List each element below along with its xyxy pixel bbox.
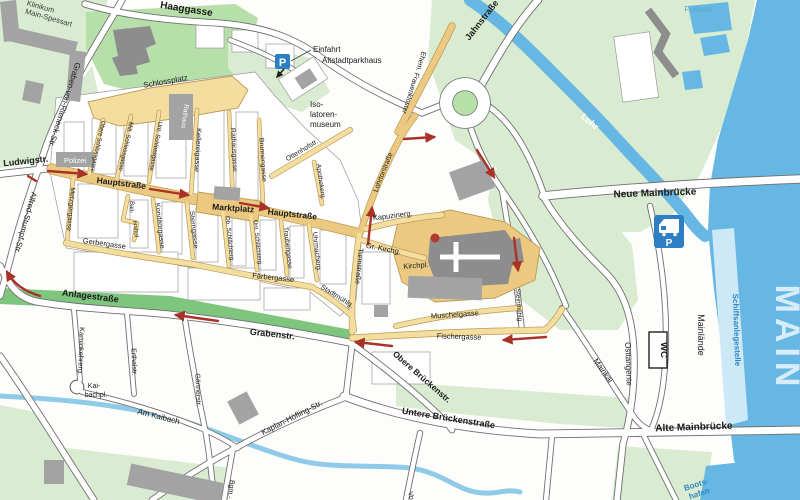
city-map-canvas[interactable]: P P WC Haaggasse Klinikum Main-Spessart … — [0, 0, 800, 500]
place-label-freibad: Freibad — [684, 5, 711, 14]
wc-label: WC — [658, 342, 669, 358]
building-block — [320, 230, 346, 284]
annotation-einfahrt-1: Einfahrt — [313, 45, 341, 54]
street-label-erthalstr: Erthalstr. — [130, 348, 138, 376]
roundabout — [439, 77, 491, 129]
camper-parking-letter: P — [666, 238, 673, 249]
street-label-kirchpl: Kirchpl. — [403, 260, 429, 271]
annotation-einfahrt-2: Altstadtparkhaus — [322, 56, 382, 65]
place-label-isolatoren-3: museum — [310, 120, 341, 129]
place-label-isolatoren-2: latoren- — [310, 110, 337, 119]
marktplatz-building — [214, 186, 241, 201]
street-label-osttangente: Osttangente — [623, 342, 634, 386]
parking-icon-letter: P — [279, 57, 286, 69]
street-label-kaibachpl-1: Kai- — [88, 383, 101, 390]
kaibachplatz-circle — [71, 381, 84, 394]
building-block — [362, 252, 390, 304]
building — [44, 460, 64, 484]
street-label-baltershof-1: Balt- — [127, 201, 134, 214]
building-block — [78, 184, 118, 238]
roundabout-island — [453, 91, 477, 115]
building-block — [236, 112, 258, 200]
building-block — [196, 208, 218, 262]
camper-icon-window — [661, 226, 666, 230]
poi-red-dot — [431, 234, 440, 243]
klinikum-building — [22, 80, 44, 104]
freibad-pool-3 — [682, 70, 703, 90]
place-label-polizei: Polizei — [64, 156, 86, 165]
street-label-vorstadt-partial: Vo — [406, 491, 414, 500]
street-label-gaertnerstr: Gärtnerstr. — [193, 373, 201, 406]
street-label-mainlaende: Mainlände — [696, 314, 706, 356]
building — [408, 276, 483, 301]
water-label-main: MAIN — [768, 285, 800, 392]
camper-icon-wheel — [662, 233, 666, 237]
building — [374, 305, 388, 317]
building-block — [264, 288, 310, 310]
street-label-fischergasse: Fischergasse — [437, 331, 482, 342]
street-label-kaibachpl-2: bachpl. — [85, 392, 108, 399]
place-label-isolatoren-1: Iso- — [310, 100, 324, 109]
map-page: P P WC Haaggasse Klinikum Main-Spessart … — [0, 0, 800, 500]
camper-icon-wheel — [673, 233, 677, 237]
